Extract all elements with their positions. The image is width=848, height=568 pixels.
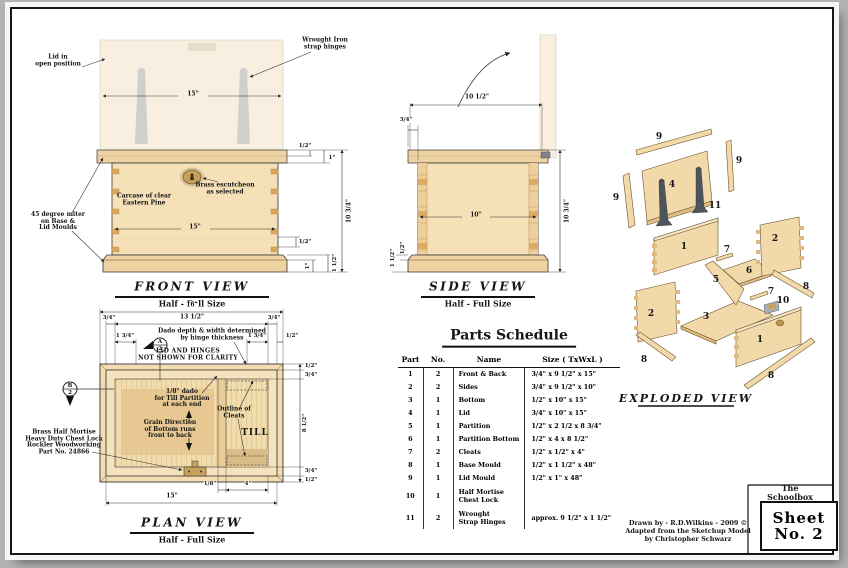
front-view-drawing: [72, 40, 348, 297]
clarity-note: LID AND HINGES NOT SHOWN FOR CLARITY: [138, 348, 238, 361]
exploded-part-number: 9: [656, 132, 662, 142]
dim-lid-mould: 1/2": [299, 143, 312, 149]
table-cell: Cleats: [453, 446, 525, 459]
table-cell: Bottom: [453, 394, 525, 407]
section-a-letter: A: [158, 339, 162, 345]
table-cell: Lid: [453, 407, 525, 420]
section-a-number: 2: [158, 346, 162, 352]
table-cell: 6: [398, 433, 423, 446]
table-cell: 4: [398, 407, 423, 420]
parts-table-header: PartNo.NameSize ( TxWxL ): [398, 353, 620, 368]
table-cell: Partition Bottom: [453, 433, 525, 446]
dim-carcase-width: 15": [189, 225, 200, 232]
miter-note: 45 degree miter on Base & Lid Moulds: [31, 212, 85, 232]
table-cell: Lid Mould: [453, 472, 525, 485]
dim-r-mould-b: 1/2": [305, 477, 318, 483]
table-cell: 11: [398, 507, 423, 529]
table-cell: 1/2" x 4 x 8 1/2": [525, 433, 620, 446]
cleats-note: Outline of Cleats: [217, 406, 251, 419]
table-cell: 2: [398, 381, 423, 394]
section-b-number: 2: [68, 390, 72, 396]
table-cell: 2: [423, 381, 453, 394]
table-cell: Front & Back: [453, 368, 525, 381]
dim-front-height: 10 3/4": [347, 198, 354, 224]
exploded-part-number: 7: [768, 287, 774, 297]
table-header-cell: No.: [423, 353, 453, 368]
table-row: 81Base Mould1/2" x 1 1/2" x 48": [398, 459, 620, 472]
table-row: 41Lid3/4" x 10" x 15": [398, 407, 620, 420]
table-cell: 10: [398, 485, 423, 507]
table-row: 101Half Mortise Chest Lock: [398, 485, 620, 507]
exploded-part-number: 10: [777, 296, 790, 306]
lock-note: Brass Half Mortise Heavy Duty Chest Lock…: [25, 430, 103, 457]
side-view-subtitle: Half - Full Size: [445, 300, 512, 309]
table-cell: 1: [423, 485, 453, 507]
exploded-part-number: 8: [768, 371, 774, 381]
dim-plan-inner: 13 1/2": [179, 315, 205, 322]
dim-pin: 1/2": [299, 239, 312, 245]
dim-plan-overall: 16": [185, 303, 198, 310]
dim-side-base-mould: 1 1/2": [390, 249, 396, 267]
section-b-letter: B: [68, 383, 73, 389]
project-title: The Schoolbox: [767, 484, 813, 502]
dim-till-width: 4": [245, 481, 252, 487]
drawing-page: { "front_view": { "title": "FRONT VIEW",…: [0, 0, 848, 568]
dim-r-wall-bottom: 3/4": [305, 468, 318, 474]
exploded-part-number: 2: [648, 309, 654, 319]
table-row: 31Bottom1/2" x 10" x 15": [398, 394, 620, 407]
dim-overall-depth: 10 1/2": [464, 95, 490, 102]
carcase-note: Carcase of clear Eastern Pine: [117, 193, 171, 206]
dim-r-mould: 1/2": [305, 363, 318, 369]
table-cell: Wrought Strap Hinges: [453, 507, 525, 529]
table-row: 51Partition1/2" x 2 1/2 x 8 3/4": [398, 420, 620, 433]
table-cell: 3: [398, 394, 423, 407]
table-cell: Partition: [453, 420, 525, 433]
table-row: 91Lid Mould1/2" x 1" x 48": [398, 472, 620, 485]
dim-hinge-left: 1 3/4": [116, 333, 134, 339]
table-row: 61Partition Bottom1/2" x 4 x 8 1/2": [398, 433, 620, 446]
table-cell: 1: [423, 459, 453, 472]
table-cell: 3/4" x 9 1/2" x 10": [525, 381, 620, 394]
dim-carcase-depth: 10": [470, 213, 481, 220]
dim-wall-left: 3/4": [103, 315, 116, 321]
exploded-part-number: 5: [713, 275, 719, 285]
table-cell: 1/2" x 2 1/2 x 8 3/4": [525, 420, 620, 433]
hinge-knuckle-icon: [541, 152, 550, 158]
plan-view-subtitle: Half - Full Size: [159, 536, 226, 545]
till-dado-note: 1/8" dado for Till Partition at each end: [154, 389, 209, 409]
dado-note: Dado depth & width determined by hinge t…: [158, 328, 266, 341]
dim-mould-right: 1/2": [286, 333, 299, 339]
credits: Drawn by - R.D.Wilkins - 2009 © Adapted …: [625, 519, 750, 543]
table-row: 112Wrought Strap Hingesapprox. 9 1/2" x …: [398, 507, 620, 529]
table-cell: Sides: [453, 381, 525, 394]
exploded-part-number: 1: [757, 335, 763, 345]
side-view-drawing: [392, 35, 566, 297]
exploded-part-number: 2: [772, 234, 778, 244]
parts-table-body: 12Front & Back3/4" x 9 1/2" x 15"22Sides…: [398, 368, 620, 529]
table-cell: [525, 485, 620, 507]
dim-bottom-width: 15": [165, 494, 178, 501]
table-header-cell: Size ( TxWxL ): [525, 353, 620, 368]
drawing-sheet: Lid in open position Wrought Iron strap …: [10, 7, 834, 555]
lid-open-note: Lid in open position: [35, 54, 81, 67]
table-cell: 1: [423, 420, 453, 433]
table-cell: 1: [398, 368, 423, 381]
dim-lid-thickness: 1": [329, 155, 336, 161]
dim-till-dado: 1/8": [204, 481, 217, 487]
exploded-view-title: EXPLODED VIEW: [619, 393, 753, 405]
sheet-word: Sheet: [773, 510, 826, 527]
dim-mould-proj: 1/2": [400, 242, 406, 255]
exploded-part-number: 8: [641, 355, 647, 365]
table-header-cell: Name: [453, 353, 525, 368]
till-label: TILL: [241, 428, 269, 438]
dim-wall-right: 3/4": [268, 315, 281, 321]
table-cell: 3/4" x 10" x 15": [525, 407, 620, 420]
table-cell: Half Mortise Chest Lock: [453, 485, 525, 507]
table-cell: Base Mould: [453, 459, 525, 472]
side-view-title: SIDE VIEW: [429, 280, 527, 293]
exploded-part-number: 1: [681, 242, 687, 252]
table-cell: 1/2" x 1" x 48": [525, 472, 620, 485]
table-row: 72Cleats1/2" x 1/2" x 4": [398, 446, 620, 459]
table-cell: 8: [398, 459, 423, 472]
parts-schedule-title: Parts Schedule: [442, 329, 576, 348]
dim-side-height: 10 3/4": [565, 198, 572, 224]
exploded-view-drawing: [623, 129, 815, 406]
sheet-number: No. 2: [774, 526, 823, 543]
dim-lid-width: 15": [187, 92, 198, 99]
table-cell: 1: [423, 407, 453, 420]
table-cell: 2: [423, 446, 453, 459]
exploded-part-number: 9: [736, 156, 742, 166]
table-cell: 1: [423, 472, 453, 485]
dim-r-interior: 8 1/2": [302, 414, 308, 432]
dim-base-mould: 1 1/2": [332, 254, 338, 272]
table-cell: 3/4" x 9 1/2" x 15": [525, 368, 620, 381]
exploded-escutcheon-icon: [776, 320, 784, 326]
front-view-title: FRONT VIEW: [134, 280, 250, 293]
table-cell: 1/2" x 1 1/2" x 48": [525, 459, 620, 472]
table-header-cell: Part: [398, 353, 423, 368]
table-cell: 5: [398, 420, 423, 433]
table-cell: approx. 9 1/2" x 1 1/2": [525, 507, 620, 529]
table-row: 22Sides3/4" x 9 1/2" x 10": [398, 381, 620, 394]
table-cell: 2: [423, 507, 453, 529]
exploded-part-number: 9: [613, 193, 619, 203]
plan-view-title: PLAN VIEW: [141, 516, 243, 529]
hinges-note: Wrought Iron strap hinges: [302, 37, 348, 50]
table-cell: 1: [423, 433, 453, 446]
exploded-part-number: 7: [724, 245, 730, 255]
table-cell: 1/2" x 10" x 15": [525, 394, 620, 407]
exploded-part-number: 4: [669, 180, 675, 190]
table-cell: 1/2" x 1/2" x 4": [525, 446, 620, 459]
exploded-part-number: 8: [803, 282, 809, 292]
table-cell: 1: [423, 394, 453, 407]
exploded-part-number: 6: [746, 266, 752, 276]
exploded-part-number: 11: [709, 201, 722, 211]
escutcheon-note: Brass escutcheon as selected: [195, 182, 254, 195]
dim-lid-overhang: 3/4": [400, 117, 413, 123]
table-cell: 9: [398, 472, 423, 485]
dim-r-wall-top: 3/4": [305, 372, 318, 378]
till-partition: [218, 379, 226, 467]
grain-note: Grain Direction of Bottom runs front to …: [144, 420, 196, 440]
parts-schedule-table: PartNo.NameSize ( TxWxL ) 12Front & Back…: [398, 353, 620, 529]
exploded-part-number: 3: [703, 312, 709, 322]
table-row: 12Front & Back3/4" x 9 1/2" x 15": [398, 368, 620, 381]
table-cell: 2: [423, 368, 453, 381]
dim-base-board: 1": [305, 263, 311, 270]
table-cell: 7: [398, 446, 423, 459]
sheet-number-box: Sheet No. 2: [760, 501, 838, 551]
